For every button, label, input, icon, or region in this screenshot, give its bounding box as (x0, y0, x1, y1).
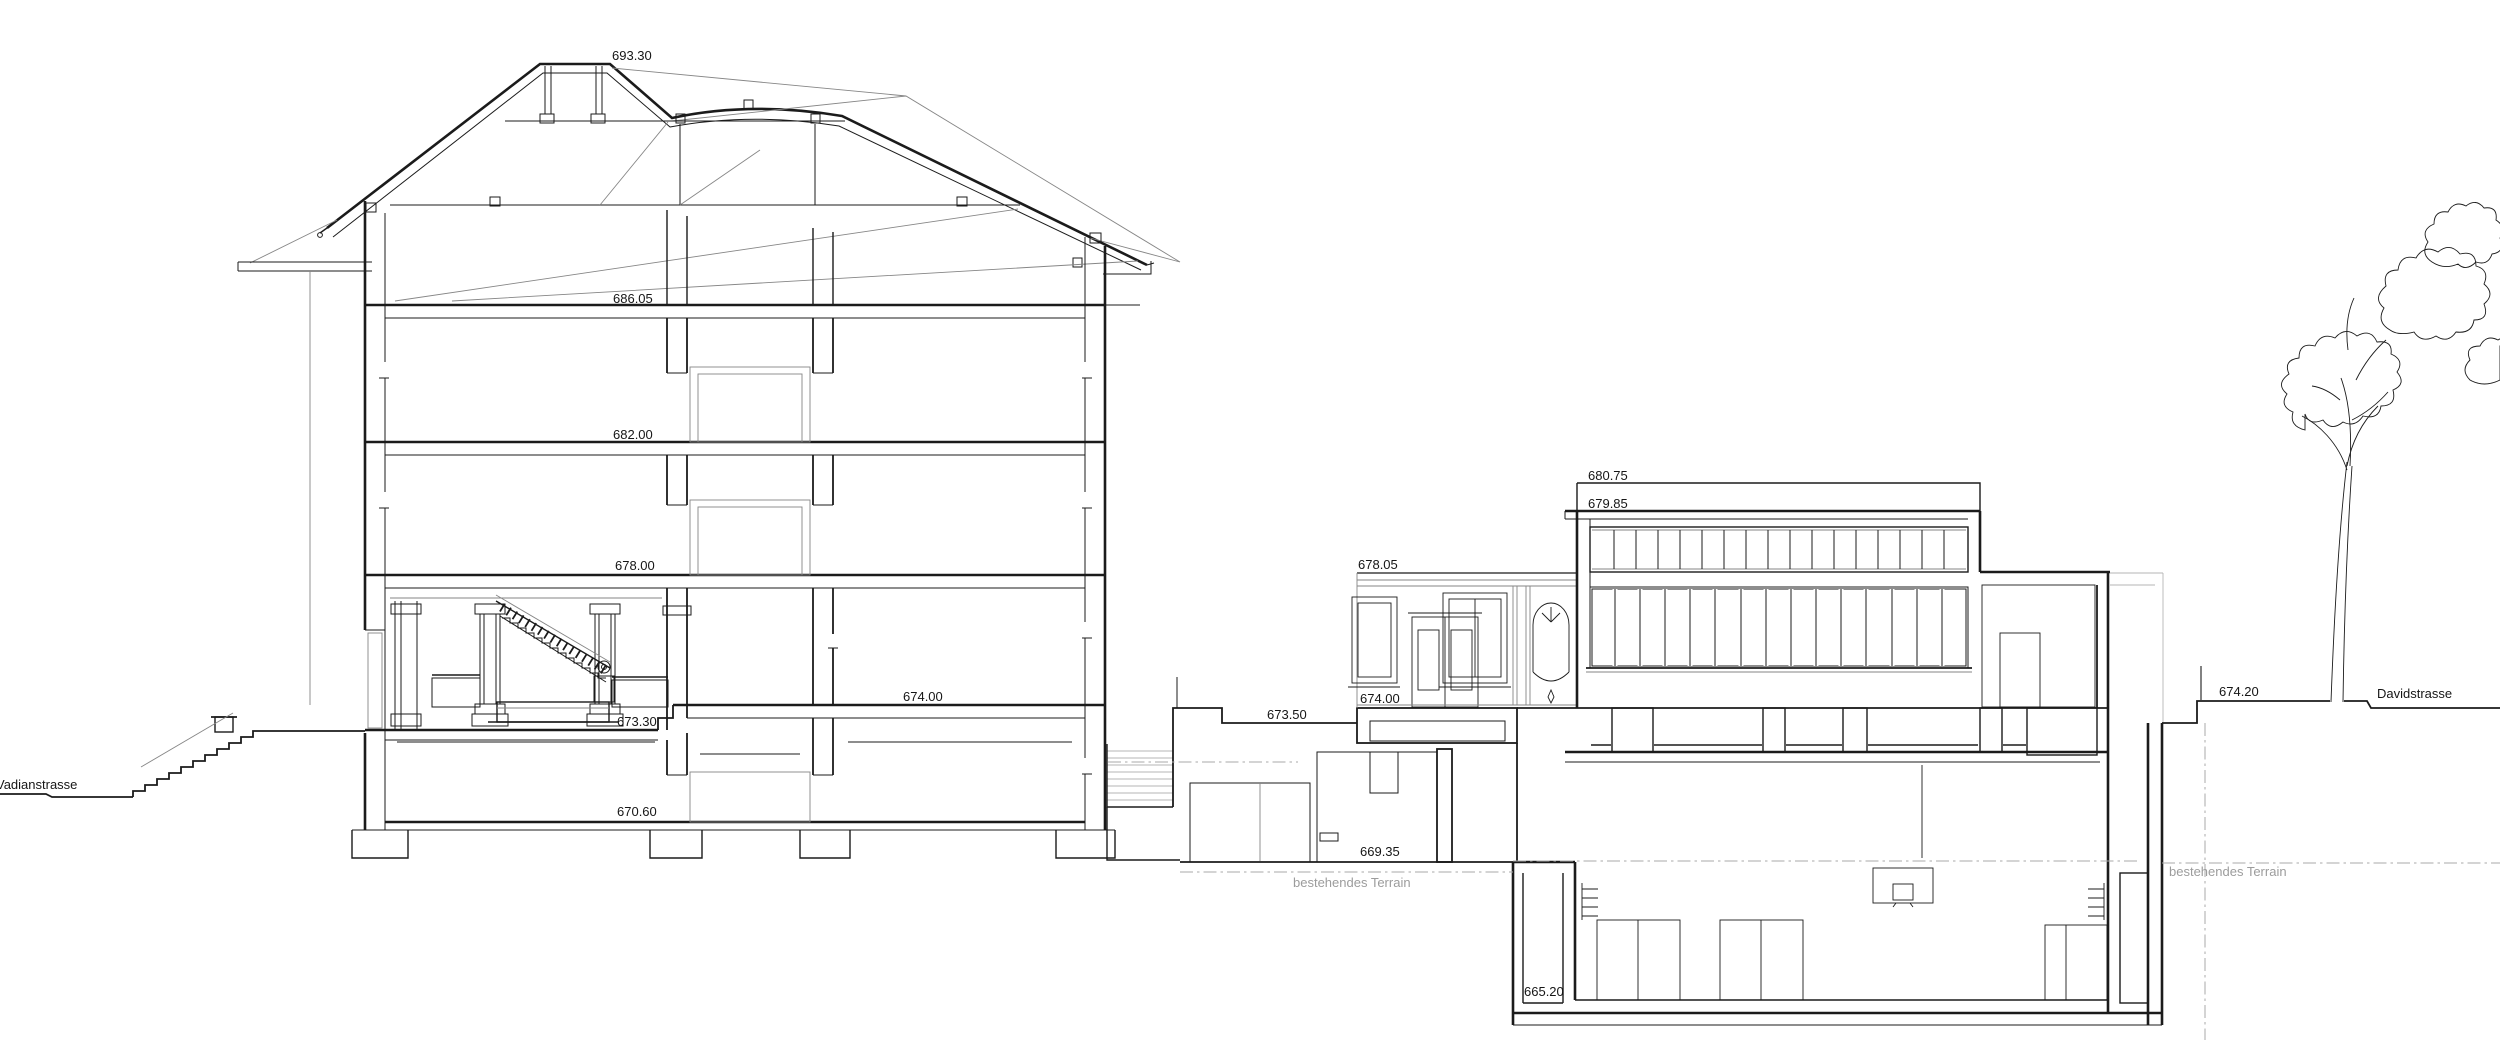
level-label-ridge: 693.30 (612, 48, 652, 63)
street-label-vadianstrasse: Vadianstrasse (0, 777, 77, 792)
terrain-note-left: bestehendes Terrain (1293, 875, 1411, 890)
building-section-svg: 693.30 686.05 682.00 678.00 674.00 673.3… (0, 0, 2500, 1059)
annex-window (1348, 597, 1400, 687)
split-level-step (658, 705, 673, 730)
annex-window (1439, 593, 1511, 687)
roof-hip-lines (250, 68, 1180, 263)
annex-floor-slab (1357, 708, 1517, 743)
annex-door (1408, 613, 1482, 707)
truss-post-foot (540, 114, 554, 123)
roof-outline (327, 64, 1147, 265)
tree-canopy (2378, 247, 2490, 339)
door-handle-detail (1320, 833, 1338, 841)
entrance-railing (141, 713, 233, 767)
level-labels: 693.30 686.05 682.00 678.00 674.00 673.3… (612, 48, 2259, 999)
level-label-third-floor: 682.00 (613, 427, 653, 442)
wing-interior-outline (1982, 585, 2095, 707)
stair-handrail-top (496, 595, 610, 662)
screen-band (1590, 587, 1968, 668)
underground-room-step (1370, 752, 1398, 793)
underground-room (1190, 783, 1310, 862)
side-stair-hatch (1107, 751, 1173, 800)
basketball-hoop-icon (1893, 884, 1913, 900)
screen-panel-fill (1592, 589, 1966, 666)
grand-staircase (482, 595, 624, 730)
wing-door-outline (2000, 633, 2040, 707)
hall-building-section (1513, 483, 2163, 1025)
gym-door-outline (1720, 920, 1803, 1000)
side-stair-box (1107, 744, 1173, 807)
background-wing-lines (2110, 573, 2163, 722)
gym-door-outline (2045, 925, 2107, 1000)
entrance-steps (133, 731, 365, 797)
street-label-davidstrasse: Davidstrasse (2377, 686, 2452, 701)
level-label-entrance-hall: 673.30 (617, 714, 657, 729)
level-label-annex-floor: 674.00 (1360, 691, 1400, 706)
right-foundation-shaft (2120, 873, 2148, 1003)
interior-walls-hall-floor (663, 588, 838, 730)
basketball-net-icon (1893, 903, 1913, 907)
truss-queen-posts (680, 124, 815, 205)
window-band-piers (1612, 708, 2097, 755)
section-drawing-sheet: 693.30 686.05 682.00 678.00 674.00 673.3… (0, 0, 2500, 1059)
stair-balusters (498, 605, 604, 670)
annex-cornice (1357, 580, 1577, 586)
gym-equipment (1582, 868, 2107, 1000)
street-ground-left (0, 794, 133, 797)
terrain-note-right: bestehendes Terrain (2169, 864, 2287, 879)
stair-base-block (497, 702, 609, 722)
foundation-footings (352, 830, 1115, 858)
stair-stringer (500, 616, 606, 682)
entrance-hall-interior (390, 595, 668, 730)
entrance-door-leaf (368, 633, 382, 728)
balustrade-rails (432, 675, 668, 677)
tree-canopy (2465, 338, 2500, 384)
annex-floor-beam (1370, 721, 1505, 741)
gutter-left-icon (320, 228, 327, 233)
gym-door-outline (1597, 920, 1680, 1000)
level-label-attic-floor: 686.05 (613, 291, 653, 306)
left-building-section (0, 64, 1180, 858)
level-label-hall-parapet: 680.75 (1588, 468, 1628, 483)
level-label-annex-top: 678.05 (1358, 557, 1398, 572)
interior-walls-third-floor (667, 318, 833, 442)
balustrade-grille (612, 680, 668, 707)
clerestory-mullions (1614, 530, 1944, 569)
side-canopy (238, 262, 372, 271)
screen-mullion-gaps (1615, 589, 1942, 666)
entrance-newel-post (215, 717, 233, 732)
level-label-courtyard: 673.50 (1267, 707, 1307, 722)
tree (2281, 202, 2500, 702)
tree-canopy (2425, 202, 2500, 267)
level-label-hall-roof: 679.85 (1588, 496, 1628, 511)
level-label-hall-foundation: 665.20 (1524, 984, 1564, 999)
level-label-street-right: 674.20 (2219, 684, 2259, 699)
gutter-left-curl-icon (318, 233, 323, 238)
left-foundation-edge (1107, 807, 1180, 860)
window-sill-notches (379, 362, 1092, 774)
basketball-backboard-icon (1873, 868, 1933, 903)
tree-branches (2312, 298, 2388, 420)
level-label-first-floor: 674.00 (903, 689, 943, 704)
level-label-second-floor: 678.00 (615, 558, 655, 573)
hall-parapet-box (1577, 483, 1980, 511)
balustrade-grille (432, 678, 480, 707)
street-ground-right (2162, 701, 2500, 723)
annex-pilaster (1513, 586, 1530, 705)
gym-right-wall (2108, 723, 2162, 1025)
roof-inner-line (333, 73, 1141, 270)
interior-walls-basement (397, 718, 1072, 822)
wall-bars-icon (2088, 883, 2104, 920)
wall-bars-icon (1582, 883, 1598, 920)
attic-floor-soffit (385, 305, 1140, 318)
level-label-basement: 670.60 (617, 804, 657, 819)
wall-pilaster (391, 601, 421, 730)
clerestory-band (1590, 527, 1968, 572)
truss-post-foot (591, 114, 605, 123)
tree-canopy (2281, 331, 2401, 430)
underground-wall (1437, 749, 1452, 862)
courtyard-section (1105, 573, 1577, 862)
tree-trunk (2302, 378, 2378, 702)
level-label-lower-court: 669.35 (1360, 844, 1400, 859)
truss-braces (395, 122, 1138, 301)
annex-niche-ornament (1533, 603, 1569, 703)
courtyard-parapet (1173, 708, 1357, 807)
interior-walls-second-floor (667, 455, 833, 575)
annex-elevation (1348, 573, 1577, 708)
